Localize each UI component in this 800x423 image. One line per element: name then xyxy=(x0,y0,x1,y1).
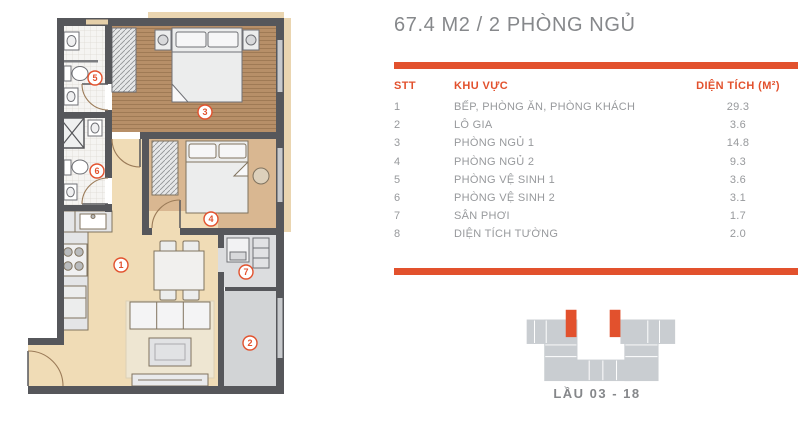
svg-text:4: 4 xyxy=(208,214,213,224)
row-area-name: PHÒNG NGỦ 2 xyxy=(454,153,678,171)
brochure-page: 1 2 3 4 5 6 7 xyxy=(0,0,800,423)
hallway-floor xyxy=(112,139,142,212)
row-area-name: BẾP, PHÒNG ĂN, PHÒNG KHÁCH xyxy=(454,98,678,116)
row-area-value: 3.1 xyxy=(678,189,798,207)
table-row: 4 PHÒNG NGỦ 2 9.3 xyxy=(394,153,798,171)
room-label-living: 1 xyxy=(114,258,128,272)
unit-highlight xyxy=(566,310,621,337)
table-header: STT KHU VỰC DIỆN TÍCH (M²) xyxy=(394,80,798,92)
row-area-name: PHÒNG VỆ SINH 2 xyxy=(454,189,678,207)
room-label-loggia: 2 xyxy=(243,336,257,350)
living-furniture xyxy=(126,301,214,386)
sofa-back xyxy=(130,302,210,329)
svg-text:7: 7 xyxy=(243,267,248,277)
svg-text:2: 2 xyxy=(247,338,252,348)
row-area-name: PHÒNG NGỦ 1 xyxy=(454,134,678,152)
room-label-bath2: 6 xyxy=(90,164,104,178)
svg-text:6: 6 xyxy=(94,166,99,176)
table-row: 8 DIỆN TÍCH TƯỜNG 2.0 xyxy=(394,225,798,243)
svg-text:1: 1 xyxy=(118,260,123,270)
pillow xyxy=(189,144,216,158)
row-area-value: 29.3 xyxy=(678,98,798,116)
row-area-value: 9.3 xyxy=(678,153,798,171)
row-area-value: 3.6 xyxy=(678,171,798,189)
row-stt: 4 xyxy=(394,153,454,171)
divider-bar-top xyxy=(394,62,798,69)
row-area-value: 14.8 xyxy=(678,134,798,152)
burner xyxy=(75,262,83,270)
toilet-tank xyxy=(64,66,71,81)
floor-plan: 1 2 3 4 5 6 7 xyxy=(24,8,296,400)
info-panel: 67.4 M2 / 2 PHÒNG NGỦ STT KHU VỰC DIỆN T… xyxy=(394,0,798,423)
row-area-name: SÂN PHƠI xyxy=(454,207,678,225)
table-row: 3 PHÒNG NGỦ 1 14.8 xyxy=(394,134,798,152)
toilet-tank xyxy=(64,160,71,175)
page-title: 67.4 M2 / 2 PHÒNG NGỦ xyxy=(394,14,636,37)
toilet-bowl xyxy=(72,160,88,174)
svg-text:5: 5 xyxy=(92,73,97,83)
row-area-value: 3.6 xyxy=(678,116,798,134)
lamp xyxy=(158,35,168,45)
room-label-bath1: 5 xyxy=(88,71,102,85)
row-area-name: LÔ GIA xyxy=(454,116,678,134)
pillow xyxy=(208,32,238,47)
table-row: 6 PHÒNG VỆ SINH 2 3.1 xyxy=(394,189,798,207)
chair xyxy=(160,289,176,300)
dining-table xyxy=(154,251,204,290)
room-label-bedroom1: 3 xyxy=(198,105,212,119)
stool xyxy=(253,168,269,184)
divider-bar-bottom xyxy=(394,268,798,275)
row-stt: 7 xyxy=(394,207,454,225)
row-stt: 5 xyxy=(394,171,454,189)
row-area-name: DIỆN TÍCH TƯỜNG xyxy=(454,225,678,243)
header-stt: STT xyxy=(394,80,454,92)
burner xyxy=(64,262,72,270)
row-area-value: 2.0 xyxy=(678,225,798,243)
row-stt: 3 xyxy=(394,134,454,152)
chair xyxy=(183,241,199,252)
row-area-name: PHÒNG VỆ SINH 1 xyxy=(454,171,678,189)
chair xyxy=(183,289,199,300)
wardrobe xyxy=(112,28,136,92)
svg-text:3: 3 xyxy=(202,107,207,117)
pillow xyxy=(219,144,246,158)
drying-door-gap xyxy=(218,248,224,272)
shelf xyxy=(253,238,269,268)
table-row: 2 LÔ GIA 3.6 xyxy=(394,116,798,134)
row-area-value: 1.7 xyxy=(678,207,798,225)
pillow xyxy=(176,32,206,47)
wardrobe xyxy=(152,141,178,195)
lamp xyxy=(246,35,256,45)
table-row: 5 PHÒNG VỆ SINH 1 3.6 xyxy=(394,171,798,189)
room-label-bedroom2: 4 xyxy=(204,212,218,226)
room-label-drying: 7 xyxy=(239,265,253,279)
building-key-map xyxy=(517,300,677,384)
table-row: 1 BẾP, PHÒNG ĂN, PHÒNG KHÁCH 29.3 xyxy=(394,98,798,116)
header-area-size: DIỆN TÍCH (M²) xyxy=(678,80,798,92)
fridge xyxy=(62,286,86,318)
row-stt: 1 xyxy=(394,98,454,116)
area-table: 1 BẾP, PHÒNG ĂN, PHÒNG KHÁCH 29.3 2 LÔ G… xyxy=(394,98,798,244)
row-stt: 2 xyxy=(394,116,454,134)
burner xyxy=(75,248,83,256)
building-footprint xyxy=(527,320,675,382)
toilet-bowl xyxy=(72,67,88,81)
chair xyxy=(160,241,176,252)
floor-range-label: LẦU 03 - 18 xyxy=(517,386,677,401)
row-stt: 8 xyxy=(394,225,454,243)
burner xyxy=(64,248,72,256)
table-row: 7 SÂN PHƠI 1.7 xyxy=(394,207,798,225)
bedroom1-furniture xyxy=(112,28,259,102)
row-stt: 6 xyxy=(394,189,454,207)
header-area-name: KHU VỰC xyxy=(454,80,678,92)
